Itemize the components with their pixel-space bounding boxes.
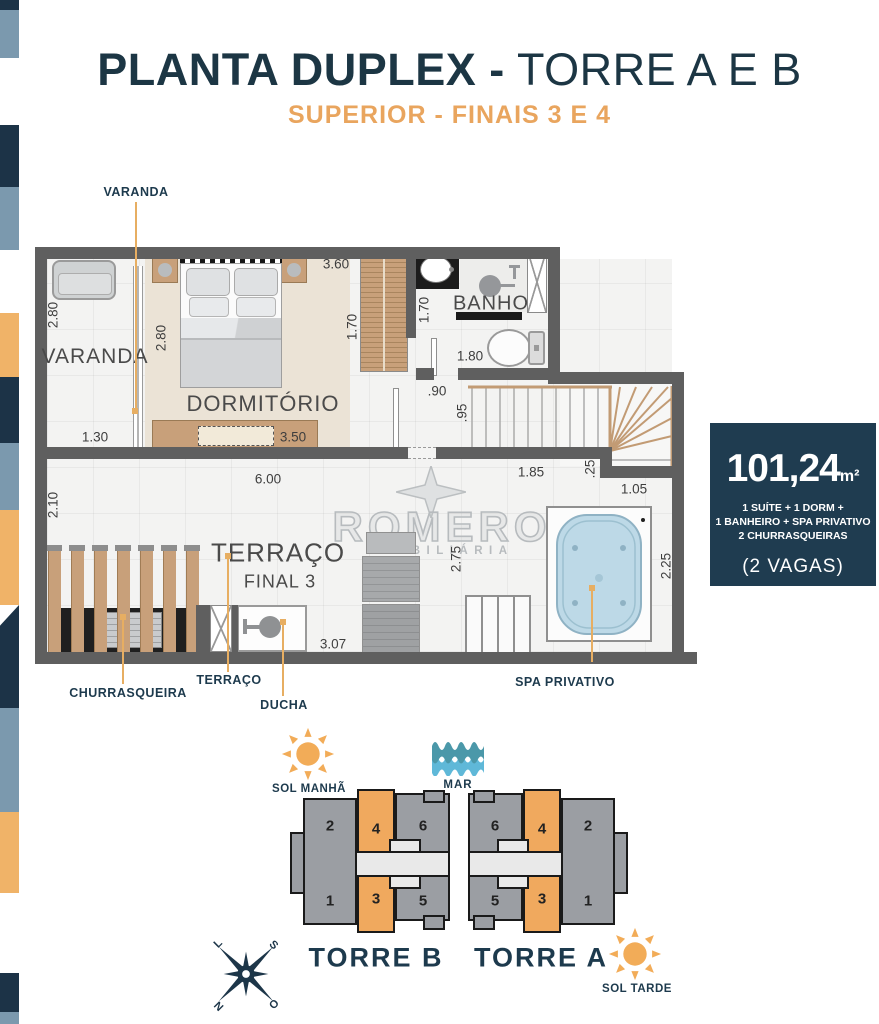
compass-n: N	[211, 1000, 225, 1014]
toilet-bowl	[487, 329, 531, 367]
pergola-slat-cap	[161, 545, 177, 551]
wall-right-terrace	[672, 466, 684, 664]
torre-a-footprint: 6 4 2 5 3 1	[468, 789, 615, 933]
pergola-slat-cap	[92, 545, 108, 551]
torre-b-unit-4: 4	[372, 821, 380, 838]
shower-valve-bar	[509, 265, 520, 268]
torre-b-tab-br	[423, 915, 445, 930]
leader-terraco	[227, 558, 229, 672]
pillow	[189, 297, 229, 317]
wall-right-upper	[548, 247, 560, 384]
terrace-steps	[465, 595, 531, 657]
room-label-final: FINAL 3	[244, 572, 316, 593]
callout-spa: SPA PRIVATIVO	[515, 675, 615, 689]
bed-blanket	[181, 338, 281, 387]
toilet-button	[534, 345, 539, 351]
bath-window-hatch	[527, 251, 547, 313]
pergola-slat-cap	[69, 545, 85, 551]
pergola-slat	[140, 551, 153, 652]
staircase	[462, 372, 684, 480]
pergola-slat	[163, 551, 176, 652]
wall-stairs-right	[672, 372, 684, 478]
wall-pergola-b	[232, 605, 238, 652]
compass-l: L	[212, 937, 225, 950]
room-label-terraco: TERRAÇO	[211, 538, 345, 569]
sea-waves-icon	[432, 736, 484, 776]
callout-varanda-top: VARANDA	[103, 185, 168, 199]
lounge-back	[362, 556, 420, 602]
leader-ducha	[282, 624, 284, 696]
torre-a-label: TORRE A	[474, 943, 608, 974]
torre-b-tab-tr	[423, 790, 445, 803]
page-title-bold: PLANTA DUPLEX -	[97, 44, 505, 95]
pillow	[234, 268, 278, 296]
info-area-value: 101,24	[727, 447, 840, 490]
door-threshold-terraco	[408, 447, 436, 459]
ducha-arm	[245, 625, 261, 629]
pergola-slat-cap	[184, 545, 200, 551]
dim-stairs-width: 1.85	[518, 465, 544, 480]
info-area-unit: m²	[840, 468, 860, 485]
stripe-square	[0, 377, 19, 443]
callout-ducha: DUCHA	[260, 698, 308, 712]
pergola-slat-cap	[138, 545, 154, 551]
dim-ducha-width: 3.07	[320, 637, 346, 652]
wardrobe-dashed-shelf	[198, 426, 274, 446]
ducha-knob	[243, 619, 247, 634]
wall-pergola-a	[196, 605, 210, 652]
callout-churrasqueira: CHURRASQUEIRA	[69, 686, 187, 700]
dim-spa-depth: 2.25	[659, 553, 674, 579]
torre-a-core-h	[468, 851, 563, 877]
dim-varanda-width: 1.30	[82, 430, 108, 445]
dim-spa-offset: 1.05	[621, 482, 647, 497]
dim-hall-width: .90	[428, 384, 447, 399]
torre-b-unit-6: 6	[419, 818, 427, 835]
dim-closet-depth: 1.70	[345, 314, 360, 340]
sofa-cushion-line	[58, 273, 112, 295]
page-subtitle: SUPERIOR - FINAIS 3 E 4	[20, 101, 879, 130]
pergola-slat	[94, 551, 107, 652]
spa-platform	[546, 506, 652, 642]
dim-dorm-width: 3.50	[280, 430, 306, 445]
info-line1: 1 SUÍTE + 1 DORM +	[710, 501, 876, 515]
pillow	[236, 297, 276, 317]
wall-stairs-top	[548, 372, 684, 384]
stripe-square	[0, 443, 19, 510]
torre-a-unit-3: 3	[538, 891, 546, 908]
ducha-box	[237, 605, 307, 652]
dim-terraco-width: 6.00	[255, 472, 281, 487]
dim-varanda-depth: 2.80	[46, 302, 61, 328]
sink-basin	[420, 256, 452, 283]
nightstand-left	[152, 257, 178, 283]
lounge-seat	[362, 604, 420, 653]
dim-banho-depth: 1.70	[417, 297, 432, 323]
wall-mid-b	[436, 447, 612, 459]
info-parking: (2 VAGAS)	[710, 556, 876, 578]
dim-banho-width: 1.80	[457, 349, 483, 364]
info-line3: 2 CHURRASQUEIRAS	[710, 529, 876, 543]
torre-b-footprint: 2 4 6 1 3 5	[303, 789, 450, 933]
wall-hall-top-left	[416, 368, 434, 380]
leader-churrasqueira	[122, 618, 124, 684]
bed-sheet-fold	[181, 318, 281, 338]
stripe-square	[0, 125, 19, 187]
torre-a-unit-5: 5	[491, 893, 499, 910]
stripe-square	[0, 605, 19, 708]
room-label-varanda: VARANDA	[42, 345, 149, 369]
stripe-square	[0, 812, 19, 893]
room-label-banho: BANHO	[453, 293, 529, 316]
wall-bottom	[35, 652, 697, 664]
dim-terraco-depth: 2.10	[46, 492, 61, 518]
torre-b-unit-3: 3	[372, 891, 380, 908]
torre-a-unit-1: 1	[584, 893, 592, 910]
info-area: 101,24m²	[710, 447, 876, 491]
torre-a-unit-4: 4	[538, 821, 546, 838]
wall-top	[35, 247, 560, 259]
pergola-slat	[71, 551, 84, 652]
closet-slats	[360, 252, 408, 372]
stripe-square	[0, 10, 19, 58]
torre-a-tab-bl	[473, 915, 495, 930]
callout-terraco: TERRAÇO	[196, 673, 261, 687]
compass-s: S	[267, 938, 281, 952]
page-title: PLANTA DUPLEX - TORRE A E B	[20, 44, 879, 96]
pergola-slat-cap	[115, 545, 131, 551]
wall-hall-top-right	[458, 368, 548, 380]
stripe-square	[0, 187, 19, 250]
sun-icon	[608, 927, 662, 981]
torre-b-unit-5: 5	[419, 893, 427, 910]
compass-o: O	[267, 997, 282, 1012]
torre-a-unit-6: 6	[491, 818, 499, 835]
leader-spa	[591, 590, 593, 662]
wall-corridor	[406, 247, 416, 338]
torre-a-tab-right	[613, 832, 628, 894]
lounge-chair	[362, 532, 420, 653]
dim-dorm-depth: 2.80	[154, 325, 169, 351]
compass-rose-icon: L S N O	[203, 931, 289, 1017]
flyer-canvas: PLANTA DUPLEX - TORRE A E B SUPERIOR - F…	[0, 0, 879, 1024]
pergola-slat	[48, 551, 61, 652]
torre-a-unit-2: 2	[584, 818, 592, 835]
lounge-head	[366, 532, 416, 554]
sofa	[52, 260, 116, 300]
info-box: 101,24m² 1 SUÍTE + 1 DORM + 1 BANHEIRO +…	[710, 423, 876, 586]
info-line2: 1 BANHEIRO + SPA PRIVATIVO	[710, 515, 876, 529]
torre-a-tab-tl	[473, 790, 495, 803]
stripe-square	[0, 313, 19, 377]
faucet	[449, 267, 454, 272]
dim-hall-depth: .95	[455, 404, 470, 423]
page-title-light: TORRE A E B	[517, 44, 802, 95]
torre-b-label: TORRE B	[308, 943, 443, 974]
stripe-square	[0, 708, 19, 812]
stripe-square	[0, 510, 19, 605]
stripe-square	[0, 973, 19, 1012]
leader-varanda-dot	[132, 408, 138, 414]
label-sol-tarde: SOL TARDE	[602, 983, 672, 995]
pergola-slat-cap	[46, 545, 62, 551]
torre-b-core-h	[355, 851, 450, 877]
dim-terraco-mid: 2.75	[449, 546, 464, 572]
wall-mid-stub	[600, 447, 612, 478]
shower-arm	[499, 284, 515, 287]
room-label-dormitorio: DORMITÓRIO	[187, 391, 340, 417]
ducha-shower-head	[259, 616, 281, 638]
wall-mid-a	[35, 447, 408, 459]
dim-stairs-jog: .25	[583, 460, 598, 479]
stripe-square	[0, 0, 19, 10]
double-bed	[180, 254, 282, 388]
pillow	[186, 268, 230, 296]
nightstand-right	[281, 257, 307, 283]
sun-icon	[281, 727, 335, 781]
torre-b-unit-1: 1	[326, 893, 334, 910]
lamp	[287, 263, 301, 277]
door-leaf-hall	[393, 388, 399, 450]
dim-corridor-width: 3.60	[323, 257, 349, 272]
leader-varanda	[135, 202, 137, 408]
lamp	[158, 263, 172, 277]
closet-center-line	[383, 253, 385, 371]
torre-b-unit-2: 2	[326, 818, 334, 835]
stripe-square	[0, 1012, 19, 1024]
spa-tub	[548, 508, 650, 640]
